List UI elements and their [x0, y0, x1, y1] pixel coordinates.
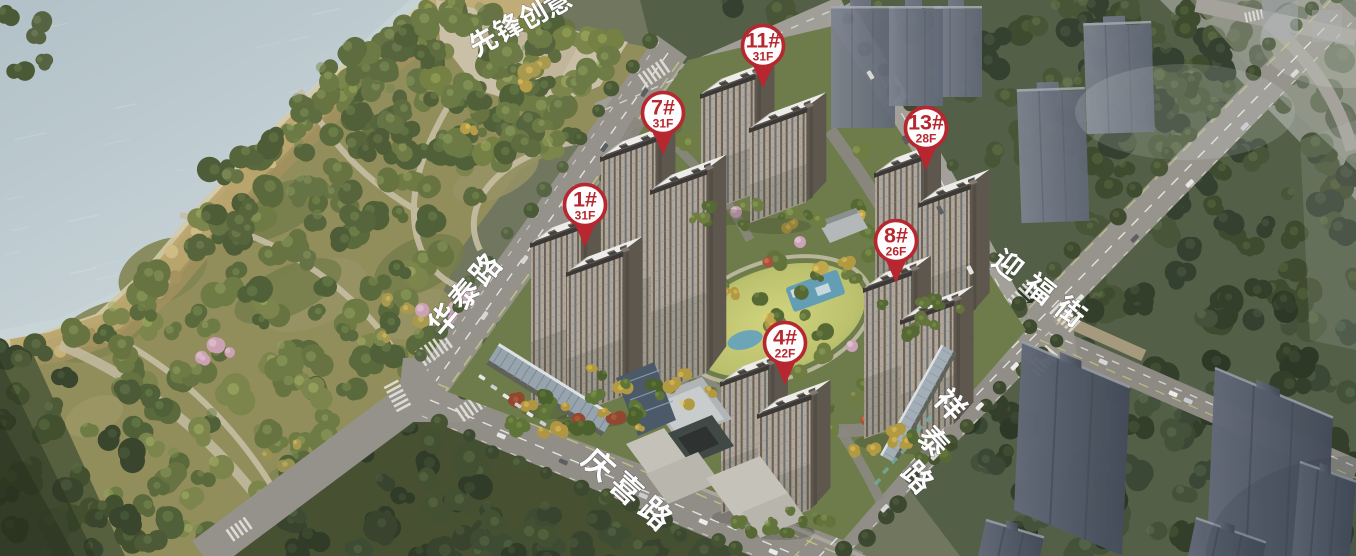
svg-text:31F: 31F: [575, 209, 596, 223]
svg-text:28F: 28F: [916, 132, 937, 146]
svg-text:31F: 31F: [753, 50, 774, 64]
svg-text:31F: 31F: [653, 117, 674, 131]
svg-text:22F: 22F: [775, 347, 796, 361]
svg-text:26F: 26F: [886, 245, 907, 259]
